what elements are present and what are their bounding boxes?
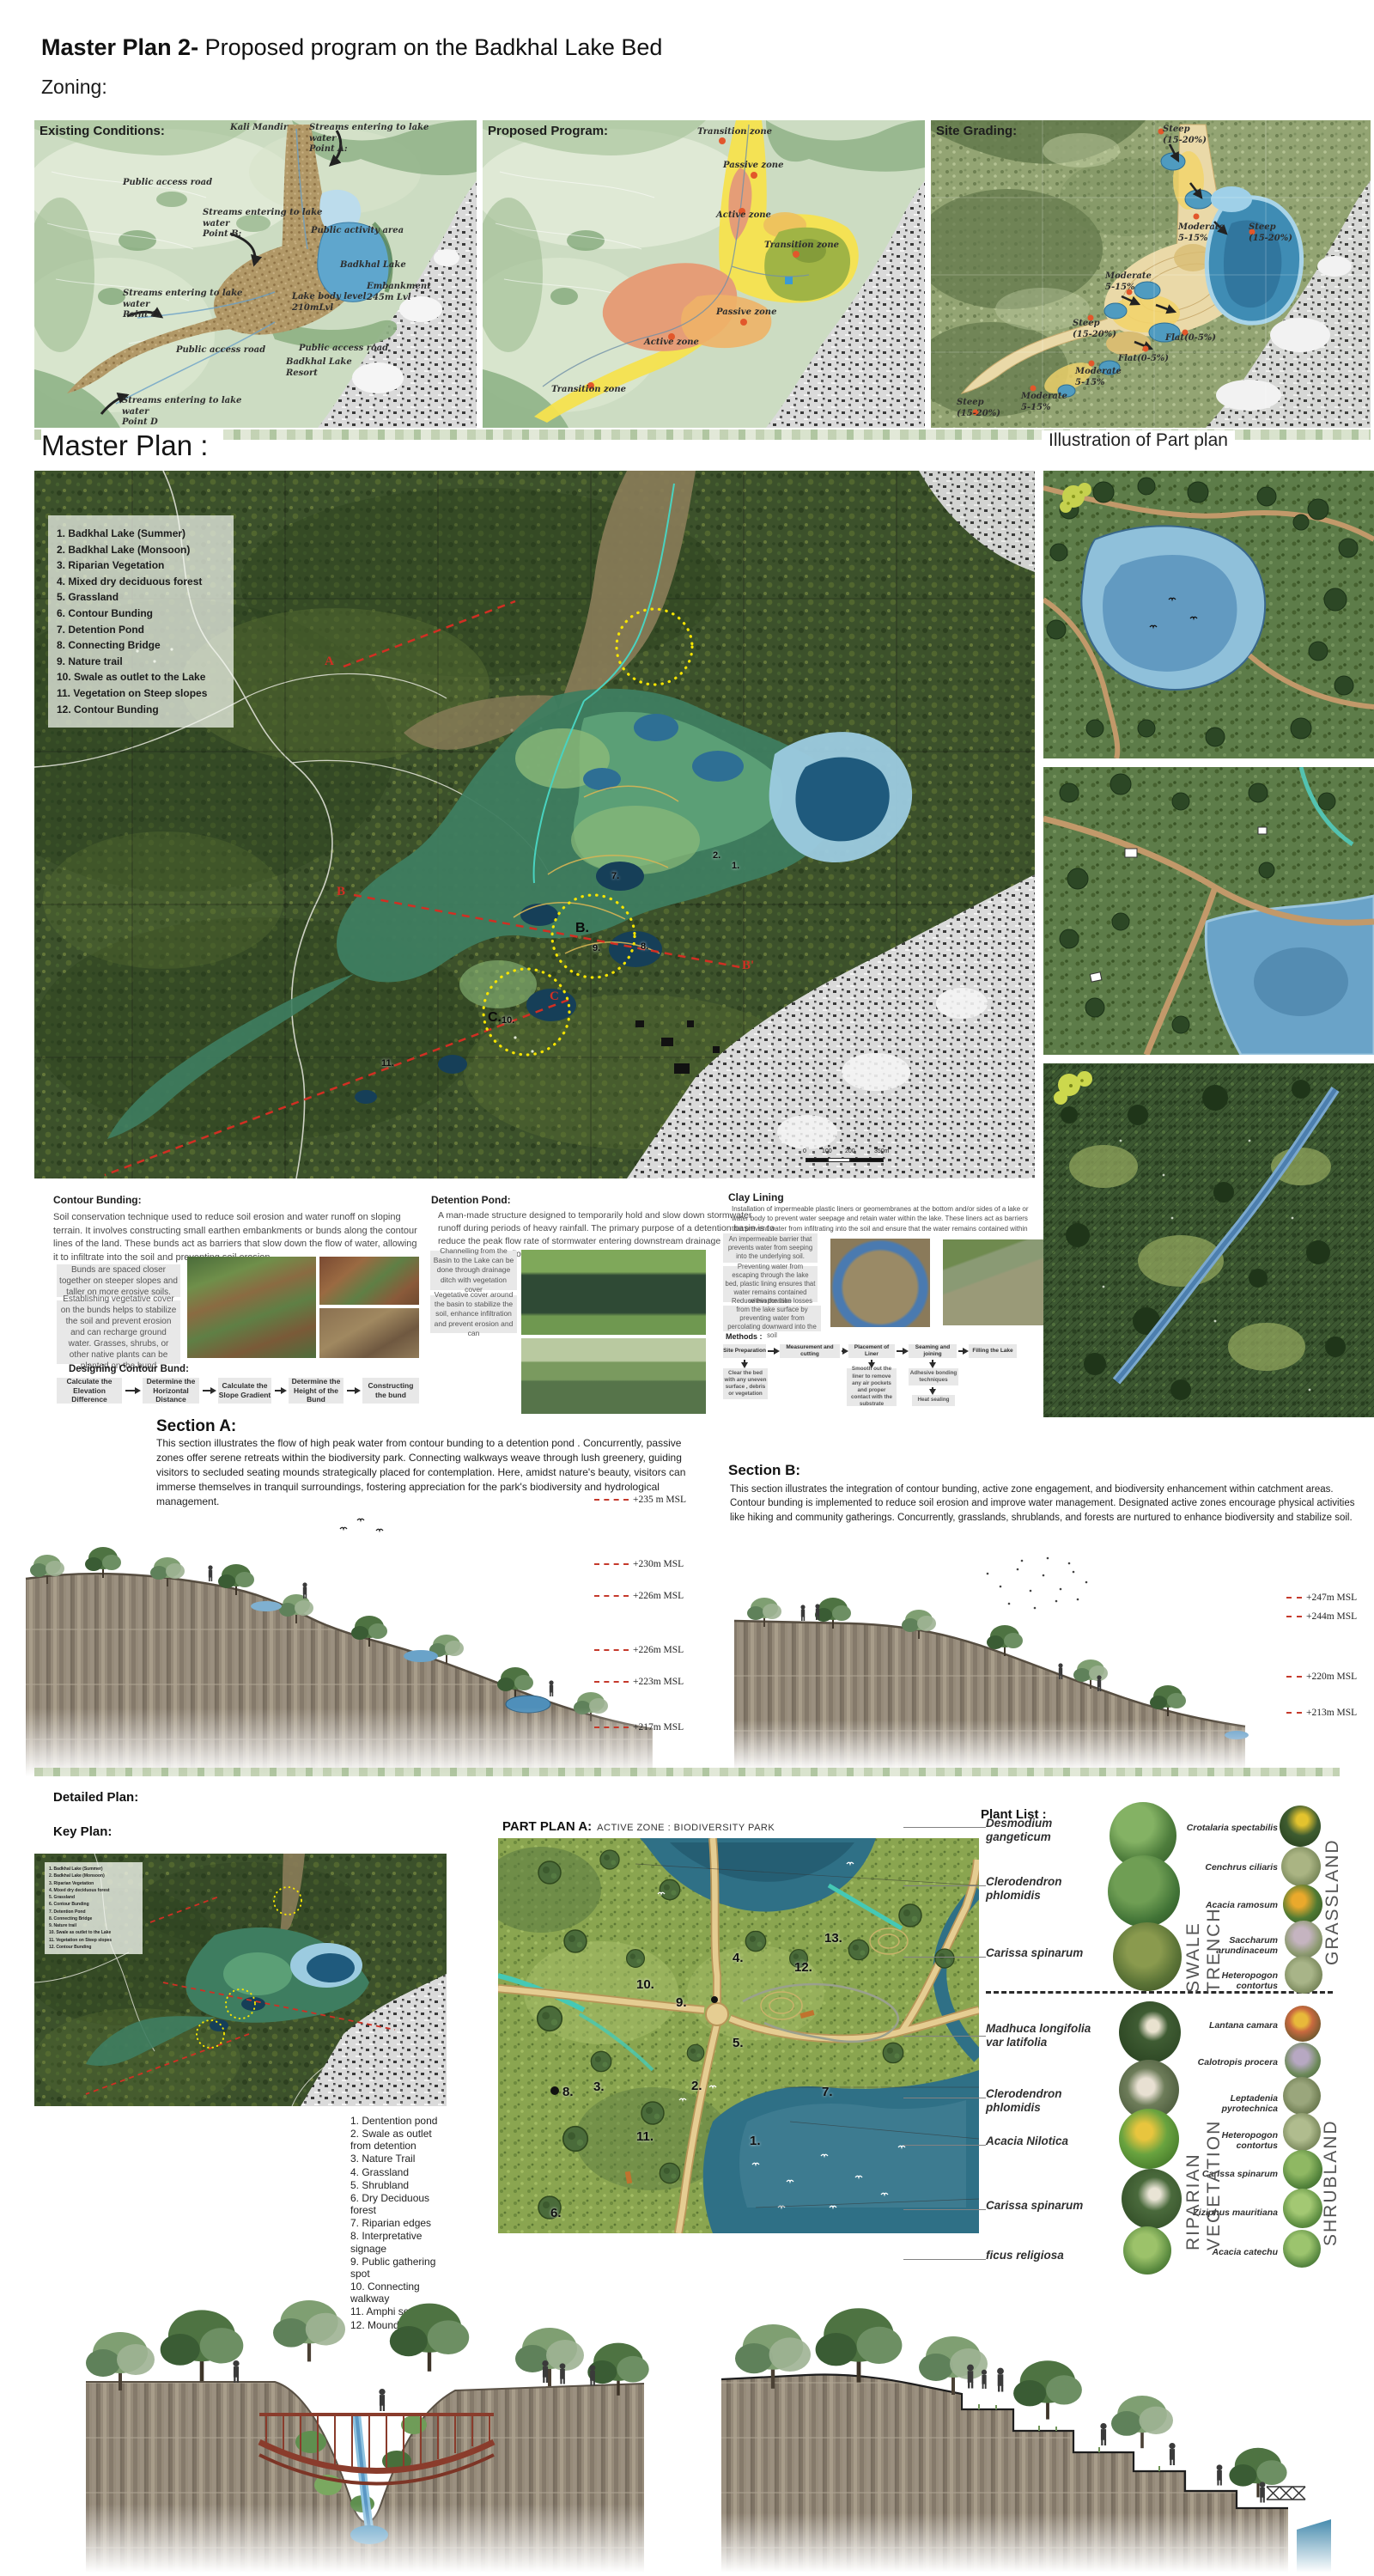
elevation-label: +217m MSL (633, 1722, 684, 1733)
plan-number: 9. (676, 1995, 687, 2010)
plant-name: Calotropis procera (1183, 2057, 1278, 2067)
map-annotation: Passive zone (716, 308, 776, 319)
plan-number: 11. (636, 2129, 654, 2144)
flow-arrow-down (932, 1387, 933, 1393)
elevation-row: +244m MSL (1286, 1611, 1357, 1622)
elevation-label: +226m MSL (633, 1591, 684, 1601)
map-annotation: Active zone (644, 338, 699, 349)
key-item: 4. Grassland (350, 2166, 453, 2178)
legend-item: 5. Grassland (57, 589, 225, 606)
zoning-heading: Zoning: (41, 76, 107, 99)
plant-photo (1108, 1855, 1180, 1927)
contour-note-1: Bunds are spaced closer together on stee… (57, 1264, 180, 1297)
decor-strip (34, 1768, 1340, 1776)
key-plan-label: Key Plan: (53, 1824, 112, 1839)
leader-line (903, 1957, 986, 1958)
page-title-bold: Master Plan 2- (41, 34, 198, 60)
master-plan-legend: 1. Badkhal Lake (Summer) 2. Badkhal Lake… (48, 515, 234, 728)
method-step-5: Filling the Lake (969, 1344, 1017, 1358)
elevation-dash (1286, 1597, 1302, 1599)
key-item: 1. Dentention pond (350, 2115, 453, 2127)
legend-item: 8. Connecting Bridge (57, 637, 225, 654)
wetland-inner (223, 1952, 292, 1995)
section-b-drawing (721, 1539, 1288, 1771)
flow-arrow (897, 1350, 907, 1352)
elevation-dash (594, 1563, 629, 1565)
detention-note-1: Channelling from the Basin to the Lake c… (430, 1251, 517, 1290)
map-number: 8. (641, 941, 648, 952)
part-plan-illustration-3 (1043, 1063, 1374, 1417)
leader-line (903, 1827, 986, 1828)
map-annotation: Steep (15-20%) (957, 398, 1000, 419)
elevation-dash (594, 1726, 629, 1728)
flow-step-2: Determine the Horizontal Distance (143, 1378, 199, 1404)
elevation-dash (594, 1681, 629, 1683)
elevation-row: +235 m MSL (594, 1495, 686, 1505)
plant-photo (1285, 2043, 1321, 2079)
group-label-swale-trench: SWALE TRENCH (1183, 1847, 1225, 1993)
plan-number: 12. (794, 1960, 812, 1975)
key-plan-mini-legend: 1. Badkhal Lake (Summer) 2. Badkhal Lake… (45, 1862, 143, 1954)
plan-number: 6. (550, 2206, 562, 2220)
existing-conditions-graphic (34, 120, 477, 428)
mini-legend-item: 7. Detention Pond (49, 1909, 138, 1915)
photo-lined-pit (830, 1239, 930, 1327)
plant-name: Madhuca longifolia var latifolia (986, 2022, 1106, 2049)
plant-photo (1285, 2006, 1321, 2042)
plant-photo (1283, 1885, 1322, 1924)
map-proposed-program: Proposed Program: Transition zone Passiv… (483, 120, 925, 428)
map-annotation: Streams entering to lake water Point C: (123, 289, 242, 321)
flow-step-5: Constructing the bund (362, 1378, 419, 1404)
plant-name: Carissa spinarum (986, 2199, 1106, 2213)
map-annotation: Public activity area (311, 226, 404, 237)
plant-photo (1285, 1956, 1322, 1994)
key-plan-map: 1. Badkhal Lake (Summer) 2. Badkhal Lake… (34, 1854, 447, 2106)
leader-line (903, 2036, 986, 2037)
method-step-1: Site Preparation (723, 1344, 766, 1358)
section-b-body: This section illustrates the integration… (730, 1483, 1357, 1525)
map-number: 2. (713, 850, 720, 861)
map-annotation: Flat(0-5%) (1165, 333, 1216, 344)
plant-photo (1283, 2077, 1321, 2115)
map-annotation: Public access road (176, 345, 265, 356)
elevation-label: +226m MSL (633, 1645, 684, 1655)
flow-arrow (768, 1350, 778, 1352)
plan-number: 8. (562, 2085, 574, 2099)
mini-legend-item: 11. Vegetation on Steep slopes (49, 1937, 138, 1944)
section-label-a: A (325, 655, 334, 669)
mini-legend-item: 2. Badkhal Lake (Monsoon) (49, 1873, 138, 1879)
mini-legend-item: 10. Swale as outlet to the Lake (49, 1929, 138, 1936)
scale-seg (806, 1158, 828, 1162)
part-plan-title: PART PLAN A: (502, 1819, 592, 1834)
section-label-c: C (550, 990, 559, 1004)
elevation-dash (1286, 1616, 1302, 1617)
mini-legend-item: 5. Grassland (49, 1894, 138, 1901)
birds (340, 1519, 383, 1531)
illustration-1-graphic (1043, 471, 1374, 758)
key-item: 6. Dry Deciduous forest (350, 2192, 453, 2216)
mini-legend-item: 1. Badkhal Lake (Summer) (49, 1866, 138, 1873)
plant-name: Clerodendron phlomidis (986, 1875, 1106, 1902)
legend-item: 7. Detention Pond (57, 622, 225, 638)
elevation-dash (594, 1499, 629, 1501)
photo-earth-bund (319, 1308, 419, 1358)
master-plan-heading: Master Plan : (41, 429, 223, 462)
plant-name: Lantana camara (1183, 2020, 1278, 2031)
elevation-dash (594, 1595, 629, 1597)
map-annotation: Steep (15-20%) (1073, 319, 1116, 340)
flow-arrow (203, 1390, 215, 1392)
section-label-b: B (337, 885, 345, 899)
flow-step-4: Determine the Height of the Bund (289, 1378, 343, 1404)
plan-number: 3. (593, 2080, 605, 2094)
map-site-grading: Site Grading: Steep (15-20%) Moderate 5-… (931, 120, 1371, 428)
legend-item: 9. Nature trail (57, 654, 225, 670)
method-step-4: Seaming and joining (909, 1344, 957, 1358)
plan-number: 2. (691, 2079, 702, 2093)
detention-note-2: Vegetative cover around the basin to sta… (430, 1295, 517, 1333)
legend-item: 3. Riparian Vegetation (57, 557, 225, 574)
mini-legend-item: 8. Connecting Bridge (49, 1915, 138, 1922)
photo-lined-pond (943, 1239, 1043, 1325)
photo-wetland-basin (521, 1338, 706, 1414)
map-number: 9. (593, 943, 600, 953)
proposed-program-graphic (483, 120, 925, 428)
group-label-grassland: GRASSLAND (1322, 1862, 1343, 1965)
plan-number: 7. (822, 2085, 833, 2099)
map-annotation: Active zone (716, 210, 771, 222)
part-plan-title-row: PART PLAN A: ACTIVE ZONE : BIODIVERSITY … (502, 1819, 775, 1834)
map-annotation: Steep (15-20%) (1163, 125, 1207, 146)
group-label-riparian: RIPARIAN VEGETATION (1183, 2079, 1225, 2250)
legend-item: 4. Mixed dry deciduous forest (57, 574, 225, 590)
plant-photo (1281, 1847, 1321, 1886)
flow-arrow-down (932, 1360, 933, 1367)
legend-item: 1. Badkhal Lake (Summer) (57, 526, 225, 542)
mini-legend-item: 3. Riparian Vegetation (49, 1880, 138, 1887)
flow-arrow (275, 1390, 285, 1392)
detention-pond-title: Detention Pond: (431, 1194, 511, 1206)
plant-photo (1283, 2150, 1322, 2189)
map-number: 7. (611, 871, 619, 881)
method-sub-3: Adhesive bonding techniques (909, 1368, 958, 1385)
plant-name: Acacia Nilotica (986, 2134, 1106, 2148)
legend-item: 6. Contour Bunding (57, 606, 225, 622)
elevation-row: +223m MSL (594, 1677, 684, 1687)
plan-number: 13. (824, 1931, 842, 1946)
method-step-3: Placement of Liner (848, 1344, 895, 1358)
section-a-title: Section A: (156, 1417, 236, 1436)
part-plan-illustration-2 (1043, 767, 1374, 1055)
key-item: 7. Riparian edges (350, 2217, 453, 2229)
mini-legend-item: 9. Nature trail (49, 1922, 138, 1929)
map-annotation: Lake body level 210mLvl (292, 292, 366, 314)
map-annotation: Badkhal Lake (340, 260, 406, 271)
elevation-row: +230m MSL (594, 1559, 684, 1569)
map-annotation: Public access road (123, 178, 212, 189)
map-annotation: Passive zone (723, 161, 783, 172)
map-annotation: Moderate 5-15% (1021, 392, 1067, 413)
plant-name: Desmodium gangeticum (986, 1817, 1106, 1843)
elevation-row: +226m MSL (594, 1645, 684, 1655)
flow-arrow (347, 1390, 359, 1392)
key-item: 5. Shrubland (350, 2179, 453, 2191)
plant-photo (1113, 1922, 1182, 1991)
scale-label: 200 (845, 1148, 855, 1154)
map-annotation: Moderate 5-15% (1178, 222, 1225, 244)
plant-photo (1285, 1921, 1322, 1958)
lake-dark (307, 1953, 355, 1982)
map-annotation: Kali Mandir (230, 123, 288, 134)
scale-seg (828, 1158, 850, 1162)
scale-label: 100 (822, 1148, 832, 1154)
plan-number: 4. (733, 1951, 744, 1965)
part-plan-illustration-1 (1043, 471, 1374, 758)
clay-note-1: An impermeable barrier that prevents wat… (723, 1233, 818, 1263)
plant-name: Crotalaria spectabilis (1183, 1823, 1278, 1833)
key-item: 3. Nature Trail (350, 2153, 453, 2165)
flow-arrow (958, 1350, 967, 1352)
elevation-row: +217m MSL (594, 1722, 684, 1733)
elevation-dash (594, 1649, 629, 1651)
map-number: 11. (381, 1058, 394, 1069)
swale-bridge-section-illustration (26, 2246, 678, 2573)
master-plan-map: 1. Badkhal Lake (Summer) 2. Badkhal Lake… (34, 471, 1035, 1178)
elevation-row: +213m MSL (1286, 1708, 1357, 1718)
elevation-label: +230m MSL (633, 1559, 684, 1569)
photo-terraced-bunds (187, 1257, 316, 1358)
map-annotation: Transition zone (697, 127, 772, 138)
plant-photo (1122, 2169, 1182, 2229)
map-annotation: Embankment 245m Lvl (367, 282, 431, 303)
map-annotation: Transition zone (551, 385, 626, 396)
group-label-shrubland: SHRUBLAND (1321, 2134, 1341, 2246)
elevation-label: +235 m MSL (633, 1495, 686, 1505)
map-annotation: Moderate 5-15% (1075, 367, 1122, 388)
elevation-row: +226m MSL (594, 1591, 684, 1601)
contour-bunding-title: Contour Bunding: (53, 1194, 142, 1206)
plant-photo (1119, 2001, 1181, 2063)
contour-note-2: Establishing vegetative cover on the bun… (57, 1300, 180, 1364)
plant-photo (1280, 1806, 1321, 1847)
page-title-rest: Proposed program on the Badkhal Lake Bed (198, 34, 662, 60)
flow-arrow (842, 1350, 847, 1352)
map-annotation: Streams entering to lake water Point A: (309, 123, 429, 155)
leader-line (903, 2209, 986, 2210)
map-number: 1. (732, 861, 739, 871)
illustration-3-graphic (1043, 1063, 1374, 1417)
scale-bar (806, 1158, 884, 1162)
plant-photo (1283, 2189, 1322, 2228)
methods-title: Methods : (726, 1332, 763, 1341)
elevation-dash (1286, 1676, 1302, 1678)
photo-contour-terraces (319, 1257, 419, 1305)
flow-step-3: Calculate the Slope Gradient (218, 1378, 271, 1404)
flow-arrow-down (744, 1360, 745, 1367)
leader-line (903, 2098, 986, 2098)
section-label-b2: B' (742, 959, 754, 973)
elevation-label: +213m MSL (1306, 1708, 1357, 1718)
map-annotation: Streams entering to lake water Point B: (203, 208, 322, 241)
plant-photo (1283, 2113, 1321, 2151)
flow-arrow (125, 1390, 139, 1392)
elevation-row: +220m MSL (1286, 1672, 1357, 1682)
leader-line (903, 2145, 986, 2146)
legend-item: 11. Vegetation on Steep slopes (57, 685, 225, 702)
page-title: Master Plan 2- Proposed program on the B… (41, 34, 662, 61)
key-item: 2. Swale as outlet from detention (350, 2128, 453, 2152)
elevation-dash (1286, 1712, 1302, 1714)
method-step-2: Measurement and cutting (780, 1344, 840, 1358)
illustration-heading: Illustration of Part plan (1042, 430, 1235, 451)
site-grading-title: Site Grading: (936, 124, 1017, 138)
legend-item: 12. Contour Bunding (57, 702, 225, 718)
part-plan-subtitle: ACTIVE ZONE : BIODIVERSITY PARK (597, 1823, 775, 1833)
section-b-title: Section B: (728, 1462, 800, 1479)
map-annotation: Badkhal Lake Resort (286, 357, 352, 379)
plant-name: Carissa spinarum (986, 1946, 1106, 1960)
legend-item: 2. Badkhal Lake (Monsoon) (57, 542, 225, 558)
map-annotation: Public access road (299, 344, 388, 355)
plan-number: 1. (750, 2134, 761, 2148)
detailed-plan-heading: Detailed Plan: (53, 1790, 138, 1805)
map-number: 10. (502, 1015, 514, 1026)
elevation-label: +244m MSL (1306, 1611, 1357, 1622)
map-annotation: Flat(0-5%) (1118, 354, 1169, 365)
map-annotation: Streams entering to lake water Point D (122, 396, 241, 428)
method-sub-2: Smooth out the liner to remove any air p… (847, 1368, 897, 1406)
clay-note-3: Reduce evaporation losses from the lake … (723, 1306, 821, 1331)
flow-step-1: Calculate the Elevation Difference (57, 1378, 122, 1404)
plant-name: Clerodendron phlomidis (986, 2087, 1106, 2114)
legend-item: 10. Swale as outlet to the Lake (57, 669, 225, 685)
scale-label: 350m (874, 1148, 890, 1154)
method-sub-1: Clear the bed with any uneven surface , … (723, 1368, 768, 1399)
method-sub-4: Heat sealing (912, 1395, 955, 1406)
mini-legend-item: 6. Contour Bunding (49, 1901, 138, 1908)
map-annotation: Moderate 5-15% (1105, 271, 1152, 293)
map-existing-conditions: Existing Conditions: Kali Mandir Streams… (34, 120, 477, 428)
section-a-drawing (0, 1493, 678, 1776)
terraced-slope-section-illustration (704, 2246, 1331, 2573)
proposed-program-title: Proposed Program: (488, 124, 608, 138)
group-divider (986, 1991, 1333, 1994)
mini-legend-item: 4. Mixed dry deciduous forest (49, 1887, 138, 1894)
elevation-label: +247m MSL (1306, 1592, 1357, 1603)
illustration-2-graphic (1043, 767, 1374, 1055)
area-label-b: B. (575, 921, 589, 936)
area-label-c: C. (488, 1010, 502, 1026)
designing-contour-bund-title: Designing Contour Bund: (69, 1364, 189, 1374)
plan-number: 10. (636, 1977, 654, 1992)
mini-legend-item: 12. Contour Bunding (49, 1944, 138, 1951)
existing-conditions-title: Existing Conditions: (40, 124, 165, 138)
elevation-label: +220m MSL (1306, 1672, 1357, 1682)
railing (1267, 2487, 1305, 2500)
plan-number: 5. (733, 2036, 744, 2050)
clay-lining-title: Clay Lining (728, 1191, 784, 1203)
leader-line (903, 1885, 986, 1886)
seed-dots (987, 1557, 1088, 1610)
plant-photo (1119, 2109, 1179, 2169)
elevation-row: +247m MSL (1286, 1592, 1357, 1603)
elevation-label: +223m MSL (633, 1677, 684, 1687)
photo-detention-pond (521, 1250, 706, 1335)
scale-seg (850, 1158, 884, 1162)
poster-canvas: Master Plan 2- Proposed program on the B… (0, 0, 1374, 2576)
scale-label: 0 (803, 1148, 806, 1154)
map-annotation: Transition zone (764, 241, 839, 252)
map-annotation: Steep (15-20%) (1249, 222, 1292, 244)
